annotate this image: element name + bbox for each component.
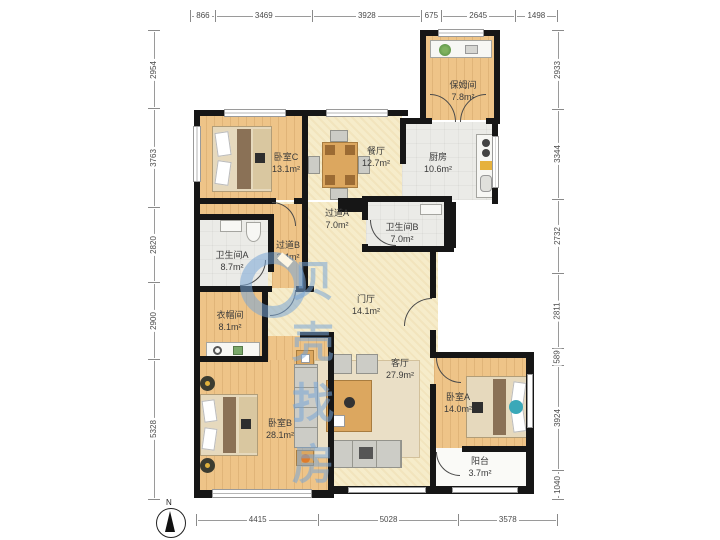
window-woshiC-top (224, 109, 286, 117)
dim-top-4: 2645 (441, 10, 515, 22)
bed-woshiA (466, 376, 528, 438)
dining-table (322, 142, 358, 188)
wall-hall-right-a (430, 252, 436, 298)
side-table-bottom (296, 450, 314, 466)
ruler-left: 2954 3763 2820 2900 5328 (148, 30, 160, 500)
ruler-right: 2933 3344 2732 2811 589 3924 1040 (552, 30, 564, 500)
wall-wsB-top (362, 196, 452, 202)
sofa-left (294, 364, 318, 448)
armchair-2 (356, 354, 378, 374)
nightstand-woshiB-top (200, 376, 215, 391)
dim-top-1: 3469 (215, 10, 312, 22)
basket-icon (233, 346, 243, 355)
dim-right-6: 1040 (552, 470, 564, 500)
dim-right-5: 3924 (552, 365, 564, 470)
wall-wsB-bottom (362, 246, 454, 252)
dining-chair-west (308, 156, 320, 174)
wall-balcony-div (462, 446, 534, 452)
label-chufang: 厨房10.6m² (424, 152, 452, 175)
label-yimaojian: 衣帽间8.1m² (216, 310, 243, 333)
plant-icon (439, 44, 451, 56)
dim-right-3: 2811 (552, 273, 564, 349)
sink-weishengjianB (420, 204, 442, 215)
dim-top-3: 675 (421, 10, 441, 22)
dim-right-1: 3344 (552, 109, 564, 199)
nightstand-woshiB-bottom (200, 458, 215, 473)
wall-guodaoB-right (302, 204, 308, 292)
window-woshiA-right (527, 374, 533, 428)
wall-woshiB-right (328, 336, 334, 494)
floorplan-canvas: 866 3469 3928 675 2645 1498 4415 5028 35… (0, 0, 720, 540)
dim-right-2: 2732 (552, 199, 564, 273)
dim-right-0: 2933 (552, 30, 564, 109)
washer-icon (213, 346, 222, 355)
baomujian-counter (430, 40, 492, 58)
wall-right-chunk (444, 202, 456, 248)
wall-yimao-bottom (194, 356, 268, 362)
label-menting: 门厅14.1m² (352, 294, 380, 317)
label-woshiA: 卧室A14.0m² (444, 392, 472, 415)
label-keting: 客厅27.9m² (386, 358, 414, 381)
label-yangtai: 阳台3.7m² (468, 456, 491, 479)
dim-left-0: 2954 (148, 30, 160, 108)
wall-woshiA-left-b (430, 384, 436, 452)
window-woshiC-left (193, 126, 201, 182)
fan-icon (465, 45, 478, 54)
wall-wsA-top (194, 214, 274, 220)
toilet-weishengjianA (246, 222, 261, 242)
wall-woshiC-bottom (194, 198, 276, 204)
ruler-top: 866 3469 3928 675 2645 1498 (190, 10, 558, 22)
dim-top-5: 1498 (515, 10, 558, 22)
wall-hall-right-b (430, 330, 436, 354)
window-living-bottom (348, 487, 426, 493)
wall-yimao-right (262, 290, 268, 358)
dim-bottom-2: 3578 (458, 514, 558, 526)
label-woshiB: 卧室B28.1m² (266, 418, 294, 441)
wall-kitchen-left (400, 118, 406, 164)
sofa-bottom (328, 440, 402, 468)
dim-left-4: 5328 (148, 359, 160, 500)
label-woshiC: 卧室C13.1m² (272, 152, 300, 175)
wall-baomujian-right (494, 30, 500, 124)
label-baomujian: 保姆间7.8m² (449, 80, 476, 103)
dim-top-2: 3928 (312, 10, 421, 22)
label-weishengjianA: 卫生间A8.7m² (215, 250, 248, 273)
compass-needle-icon (165, 511, 175, 532)
window-balcony-bottom (452, 487, 518, 493)
dim-bottom-1: 5028 (318, 514, 457, 526)
dim-left-2: 2820 (148, 207, 160, 282)
label-canting: 餐厅12.7m² (362, 146, 390, 169)
sink-weishengjianA (220, 220, 242, 232)
compass-north-label: N (166, 498, 172, 507)
dining-chair-north (330, 130, 348, 142)
label-guodaoB: 过道B3.4m² (276, 240, 300, 263)
wall-kitchen-top (402, 118, 432, 124)
window-baomujian-top (438, 29, 484, 37)
label-weishengjianB: 卫生间B7.0m² (385, 222, 418, 245)
dim-right-4: 589 (552, 348, 564, 365)
wall-wsB-left-a (362, 196, 368, 220)
window-woshiB-bay (212, 489, 312, 498)
bed-woshiC (212, 126, 272, 192)
label-guodaoA: 过道A7.0m² (325, 208, 349, 231)
dim-left-1: 3763 (148, 108, 160, 207)
dim-bottom-0: 4415 (196, 514, 318, 526)
wall-strip-bottom-a (194, 286, 272, 292)
wall-baomujian-left (420, 30, 426, 124)
dim-left-3: 2900 (148, 282, 160, 359)
window-canting-top (326, 109, 388, 117)
wall-woshiC-right (302, 110, 308, 204)
bed-woshiB (200, 394, 258, 456)
dim-top-0: 866 (190, 10, 215, 22)
ruler-bottom: 4415 5028 3578 (196, 514, 558, 526)
window-kitchen-right (492, 136, 499, 188)
